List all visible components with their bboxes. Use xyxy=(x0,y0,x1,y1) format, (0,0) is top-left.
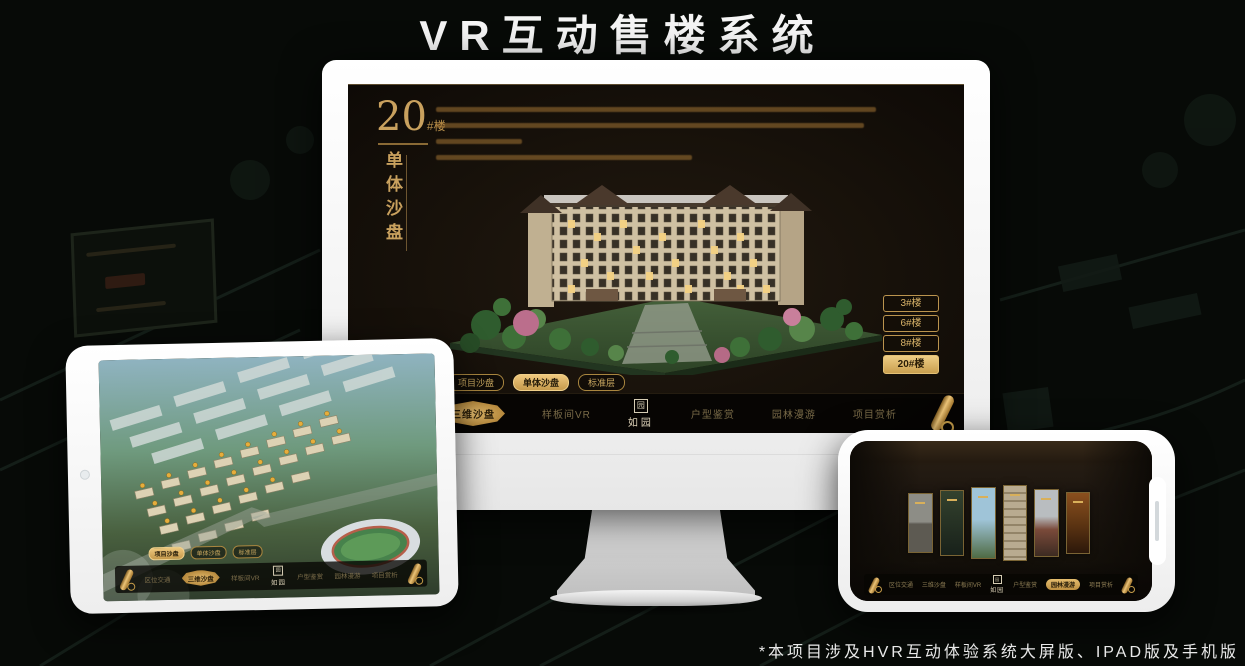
brand-logo: 园 如园 xyxy=(628,399,654,429)
gallery-panel-autumn[interactable] xyxy=(1034,489,1059,557)
floor-button-6[interactable]: 6#楼 xyxy=(883,315,939,332)
tablet-nav-project-gallery[interactable]: 项目赏析 xyxy=(372,569,398,580)
tab-project-sandbox[interactable]: 项目沙盘 xyxy=(448,374,504,391)
sandbox-3d-building-scene[interactable] xyxy=(440,147,890,375)
tablet-nav-showroom-vr[interactable]: 样板间VR xyxy=(231,572,260,583)
gallery-panel-landscape[interactable] xyxy=(971,487,996,559)
phone-screen: 区位交通 三维沙盘 样板间VR 园 如园 户型鉴赏 园林漫游 项目赏析 xyxy=(850,441,1152,601)
tablet-mockup: 项目沙盘 单体沙盘 标准层 区位交通 三维沙盘 样板间VR 园 如园 户型鉴赏 … xyxy=(65,338,459,614)
tablet-logo-text: 如园 xyxy=(271,577,286,587)
gallery-panels xyxy=(908,481,1090,565)
tablet-tab-single-sandbox[interactable]: 单体沙盘 xyxy=(190,546,226,560)
tablet-sub-tabs: 项目沙盘 单体沙盘 标准层 xyxy=(148,545,262,560)
phone-logo-seal-icon: 园 xyxy=(993,575,1002,584)
tablet-brand-logo: 园 如园 xyxy=(271,566,286,587)
block-title: 20#楼 xyxy=(376,95,446,139)
tab-single-sandbox[interactable]: 单体沙盘 xyxy=(513,374,569,391)
gold-rule xyxy=(378,143,428,145)
nav-item-showroom-vr[interactable]: 样板间VR xyxy=(542,406,591,421)
floor-button-20[interactable]: 20#楼 xyxy=(883,355,939,374)
phone-nav-showroom-vr[interactable]: 样板间VR xyxy=(955,580,981,589)
tablet-camera-icon xyxy=(80,470,90,480)
phone-nav-3d-sandbox[interactable]: 三维沙盘 xyxy=(922,580,946,589)
floor-button-3[interactable]: 3#楼 xyxy=(883,295,939,312)
phone-scroll-right-icon[interactable] xyxy=(1122,575,1133,595)
phone-nav-garden-roam[interactable]: 园林漫游 xyxy=(1046,579,1080,590)
scroll-menu-icon[interactable] xyxy=(934,392,952,434)
phone-mockup: 区位交通 三维沙盘 样板间VR 园 如园 户型鉴赏 园林漫游 项目赏析 xyxy=(838,430,1175,612)
phone-navbar: 区位交通 三维沙盘 样板间VR 园 如园 户型鉴赏 园林漫游 项目赏析 xyxy=(864,574,1138,595)
gallery-panel-garden[interactable] xyxy=(940,490,965,556)
nav-item-floorplans[interactable]: 户型鉴赏 xyxy=(691,406,735,421)
footnote: *本项目涉及HVR互动体验系统大屏版、IPAD版及手机版 xyxy=(759,638,1239,662)
tablet-nav-floorplans[interactable]: 户型鉴赏 xyxy=(297,570,323,581)
nav-item-project-gallery[interactable]: 项目赏析 xyxy=(853,406,897,421)
tab-standard-floor[interactable]: 标准层 xyxy=(578,374,625,391)
sandbox-sub-tabs: 项目沙盘 单体沙盘 标准层 xyxy=(448,374,625,391)
background-plaque xyxy=(71,218,218,337)
phone-nav-location[interactable]: 区位交通 xyxy=(889,580,913,589)
nav-item-garden-roam[interactable]: 园林漫游 xyxy=(772,406,816,421)
phone-logo-text: 如园 xyxy=(990,585,1004,594)
logo-seal-icon: 园 xyxy=(634,399,648,413)
phone-brand-logo: 园 如园 xyxy=(990,575,1004,594)
floor-selector: 3#楼 6#楼 8#楼 20#楼 xyxy=(883,295,941,377)
phone-nav-project-gallery[interactable]: 项目赏析 xyxy=(1089,580,1113,589)
tablet-screen: 项目沙盘 单体沙盘 标准层 区位交通 三维沙盘 样板间VR 园 如园 户型鉴赏 … xyxy=(99,353,440,601)
tablet-tab-project-sandbox[interactable]: 项目沙盘 xyxy=(148,547,184,561)
phone-scroll-left-icon[interactable] xyxy=(869,575,880,595)
gallery-panel-interior[interactable] xyxy=(1066,492,1091,554)
floor-button-8[interactable]: 8#楼 xyxy=(883,335,939,352)
phone-notch xyxy=(1149,477,1166,565)
monitor-stand-base xyxy=(550,590,762,606)
block-number: 20 xyxy=(376,94,427,140)
phone-speaker-icon xyxy=(1155,501,1159,541)
tablet-nav-garden-roam[interactable]: 园林漫游 xyxy=(334,569,360,580)
phone-nav-floorplans[interactable]: 户型鉴赏 xyxy=(1013,580,1037,589)
tablet-nav-3d-sandbox[interactable]: 三维沙盘 xyxy=(182,569,220,586)
gallery-panel-building[interactable] xyxy=(1003,485,1028,561)
tablet-scroll-left-icon[interactable] xyxy=(121,566,134,592)
promo-poster: VR互动售楼系统 20#楼 单体沙盘 xyxy=(0,0,1245,666)
logo-text: 如园 xyxy=(628,414,654,429)
tablet-logo-seal-icon: 园 xyxy=(273,566,283,576)
gold-vertical-rule xyxy=(406,155,407,251)
gallery-panel-courtyard[interactable] xyxy=(908,493,933,553)
tablet-tab-standard-floor[interactable]: 标准层 xyxy=(232,545,262,559)
tablet-nav-location[interactable]: 区位交通 xyxy=(144,573,170,584)
block-subtitle-vertical: 单体沙盘 xyxy=(380,151,405,247)
tablet-scroll-right-icon[interactable] xyxy=(409,560,422,586)
page-title: VR互动售楼系统 xyxy=(0,2,1245,63)
